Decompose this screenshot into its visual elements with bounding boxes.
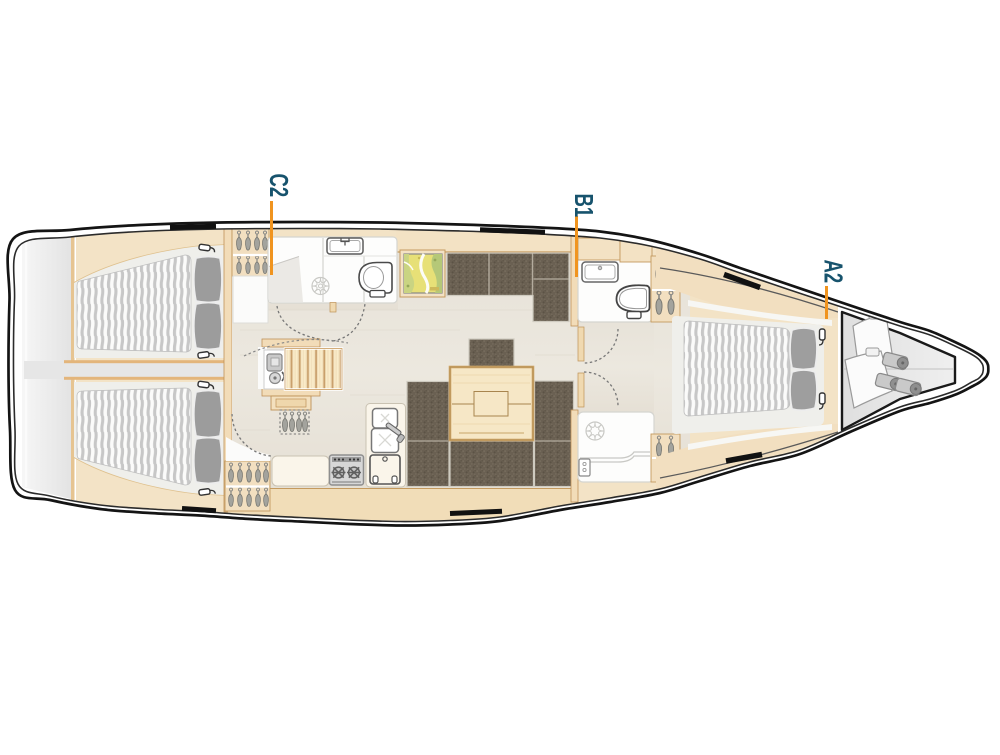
svg-text:B1: B1: [569, 194, 598, 218]
svg-text:A2: A2: [819, 260, 848, 284]
svg-text:C2: C2: [264, 174, 293, 198]
